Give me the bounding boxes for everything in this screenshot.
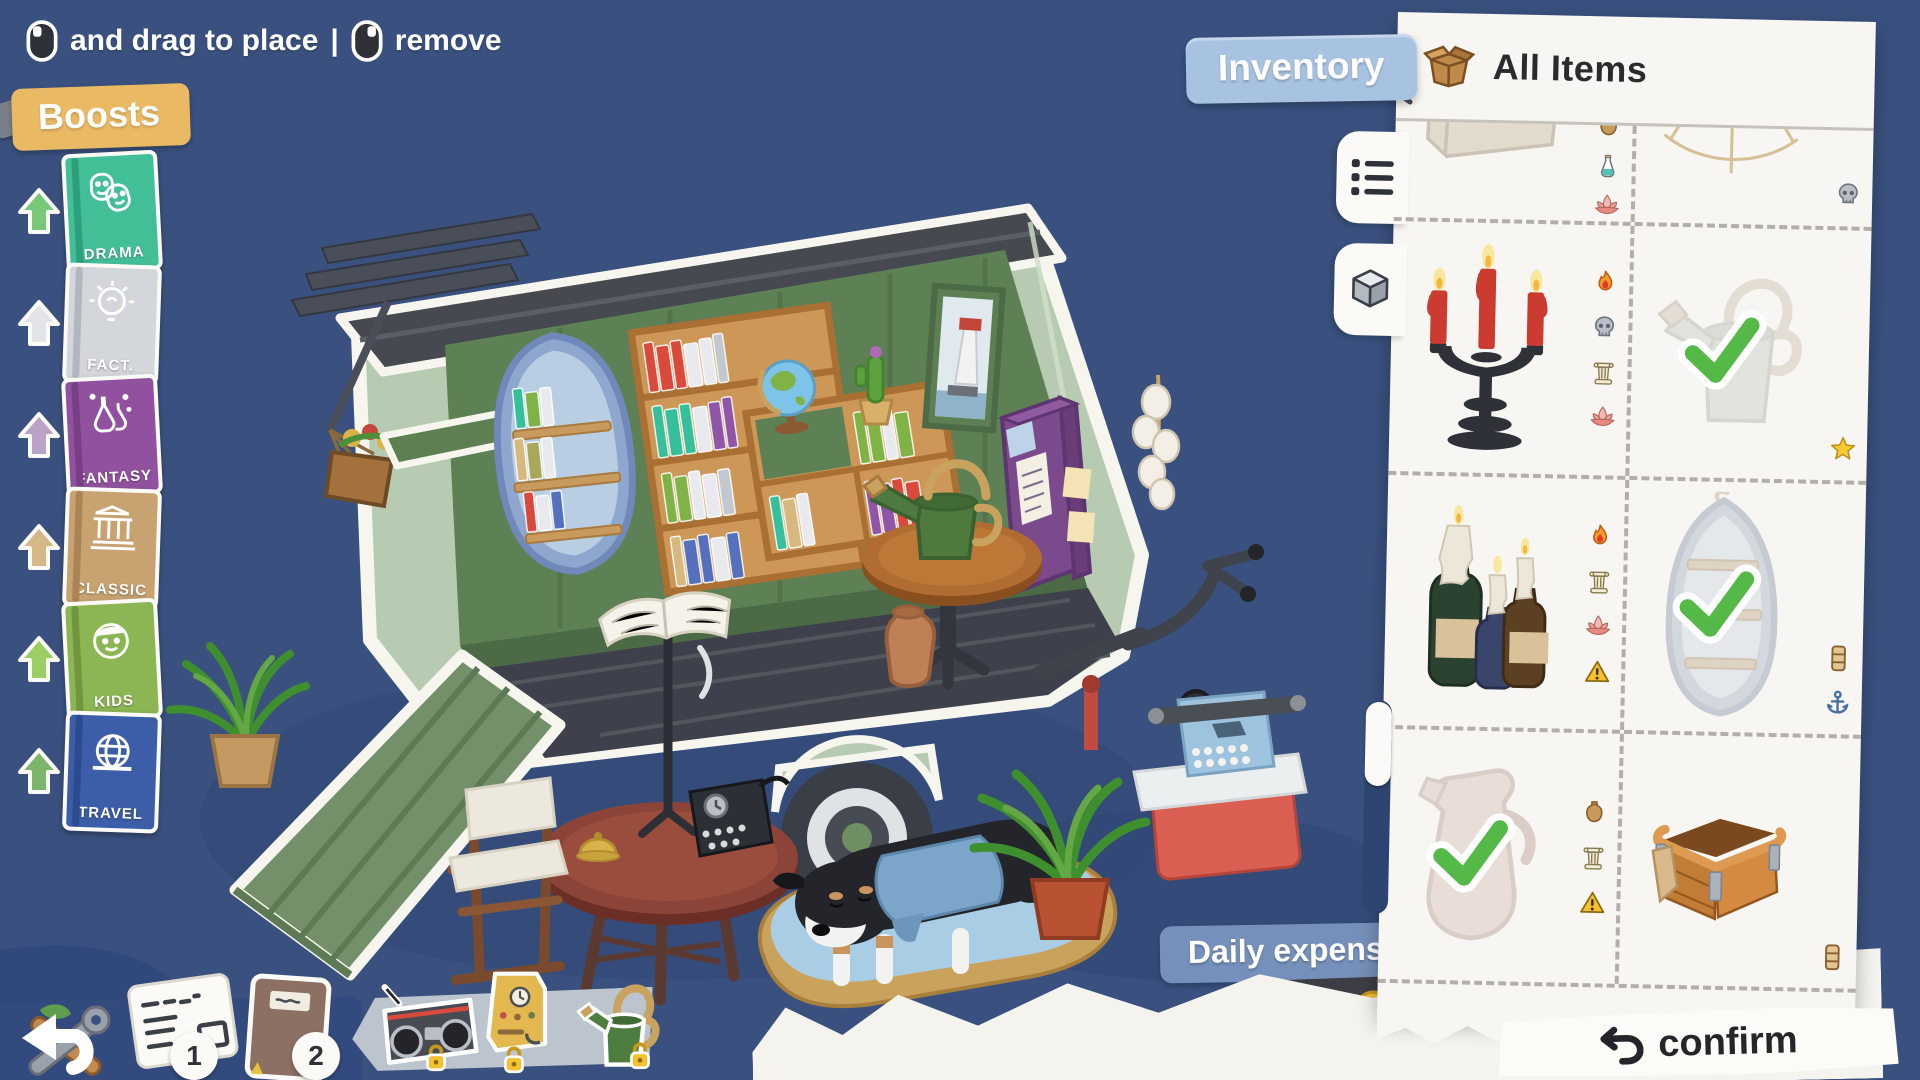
- vase-icon: [1579, 798, 1610, 829]
- inventory-item-bottle-candles[interactable]: [1383, 475, 1629, 730]
- boost-book-label: CLASSIC: [74, 580, 147, 600]
- lotus-icon: [1587, 403, 1618, 434]
- lotus-icon: [1583, 612, 1614, 643]
- lock-icon: [626, 1040, 654, 1072]
- lock-icon: [422, 1042, 450, 1074]
- drag-hint-text: and drag to place: [70, 24, 318, 58]
- item-status-badges: [1821, 484, 1858, 735]
- column-icon: [1584, 567, 1615, 598]
- right-click-mouse-icon: [351, 20, 383, 62]
- warning-icon: [1577, 888, 1608, 919]
- placement-hint: and drag to place | remove: [26, 20, 502, 62]
- shelf-icon: [1823, 643, 1854, 674]
- anchor-icon: [1822, 688, 1853, 719]
- left-click-mouse-icon: [26, 20, 58, 62]
- scrollbar-thumb[interactable]: [1364, 702, 1392, 787]
- lotus-icon: [1592, 191, 1623, 222]
- panel-title: All Items: [1492, 46, 1647, 91]
- remove-hint-text: remove: [395, 24, 502, 58]
- list-icon: [1349, 156, 1396, 199]
- boost-book-label: DRAMA: [83, 243, 145, 263]
- boost-up-arrow-icon: [16, 410, 62, 462]
- inventory-grid: [1378, 121, 1874, 993]
- item-status-badges: [1816, 738, 1853, 989]
- boost-book-fantasy[interactable]: FANTASY: [16, 386, 160, 486]
- potion-icon: [1593, 151, 1624, 182]
- placed-check-icon: [1669, 298, 1771, 400]
- boost-book-drama[interactable]: DRAMA: [16, 162, 160, 262]
- hint-divider: |: [330, 24, 338, 58]
- inventory-scrollbar[interactable]: [1362, 700, 1392, 914]
- inventory-item-watering-can[interactable]: [1629, 226, 1871, 481]
- locked-item-watering-can[interactable]: [566, 978, 672, 1066]
- tools-icon: [10, 992, 120, 1080]
- spider-web-art: [1643, 126, 1822, 220]
- boost-book-label: TRAVEL: [78, 804, 143, 823]
- warning-icon: [1582, 657, 1613, 688]
- lighthouse-painting[interactable]: [925, 286, 1003, 430]
- mail-count-badge: 1: [170, 1032, 218, 1080]
- shelf-icon: [1817, 942, 1848, 973]
- boost-up-arrow-icon: [16, 634, 62, 686]
- inventory-row: [1378, 729, 1861, 993]
- theater-masks-icon: [83, 163, 140, 224]
- fire-icon: [1585, 522, 1616, 553]
- boost-book-list: DRAMA FACT. FANTASY CLASSIC KIDS: [16, 162, 160, 822]
- item-status-badges: [1580, 479, 1617, 730]
- boosts-heading: Boosts: [11, 83, 191, 151]
- placed-check-icon: [1664, 552, 1766, 654]
- child-face-icon: [83, 611, 140, 672]
- candelabra-art: [1397, 231, 1577, 465]
- boost-book-label: KIDS: [94, 692, 135, 711]
- column-icon: [1588, 358, 1619, 389]
- item-status-badges: [1832, 130, 1866, 227]
- greek-temple-icon: [85, 499, 141, 559]
- inventory-item-storage-box[interactable]: [1394, 121, 1637, 222]
- item-status-badges: [1591, 121, 1625, 222]
- game-screen: { "colors": { "background": "#3a517f", "…: [0, 0, 1920, 1080]
- skull-icon: [1589, 313, 1620, 344]
- journal-count-badge: 2: [292, 1032, 340, 1080]
- boost-up-arrow-icon: [16, 186, 62, 238]
- fire-icon: [1590, 268, 1621, 299]
- item-status-badges: [1826, 230, 1863, 481]
- inventory-button[interactable]: Inventory: [1185, 34, 1417, 104]
- book-spine: [72, 267, 83, 379]
- undo-arrow-icon: [1598, 1025, 1645, 1066]
- column-icon: [1578, 843, 1609, 874]
- copper-jug[interactable]: [887, 606, 935, 686]
- typewriter-cooler[interactable]: [1134, 692, 1306, 879]
- inventory-row: [1394, 121, 1874, 231]
- inventory-item-candelabra[interactable]: [1388, 221, 1634, 476]
- inventory-row: [1383, 475, 1866, 739]
- item-status-badges: [1575, 733, 1612, 984]
- boost-book-classic[interactable]: CLASSIC: [16, 498, 160, 598]
- boost-book-label: FACT.: [87, 356, 134, 375]
- lock-icon: [500, 1044, 528, 1076]
- boost-book-label: FANTASY: [76, 467, 153, 488]
- globe-icon: [85, 723, 141, 783]
- inventory-row: [1388, 221, 1871, 485]
- wooden-crate-art: [1627, 744, 1807, 978]
- star-icon: [1828, 434, 1859, 465]
- boost-up-arrow-icon: [16, 522, 62, 574]
- garlic-string[interactable]: [1133, 375, 1179, 509]
- boost-up-arrow-icon: [16, 298, 62, 350]
- inventory-item-jug[interactable]: [1378, 729, 1624, 984]
- storage-box-art: [1402, 121, 1581, 215]
- boost-book-travel[interactable]: TRAVEL: [16, 722, 160, 822]
- watering-can-green-icon: [566, 978, 672, 1075]
- placed-check-icon: [1418, 801, 1520, 903]
- cube-icon: [1347, 265, 1394, 314]
- open-box-icon: [1422, 43, 1475, 90]
- confirm-label: confirm: [1658, 1019, 1799, 1066]
- inventory-header: All Items: [1396, 12, 1876, 131]
- inventory-item-spider-web[interactable]: [1635, 126, 1874, 227]
- skull-icon: [1833, 180, 1864, 211]
- bottle-candles-art: [1391, 485, 1571, 719]
- inventory-panel: All Items: [1377, 12, 1876, 1026]
- inventory-item-wooden-crate[interactable]: [1619, 734, 1861, 989]
- boost-up-arrow-icon: [16, 746, 62, 798]
- boost-book-fact[interactable]: FACT.: [16, 274, 160, 374]
- lightbulb-icon: [85, 275, 141, 335]
- potion-flasks-icon: [83, 387, 140, 448]
- item-status-badges: [1585, 225, 1622, 476]
- inventory-item-boat-shelf[interactable]: [1624, 480, 1866, 735]
- boost-book-kids[interactable]: KIDS: [16, 610, 160, 710]
- tools-button[interactable]: [10, 992, 120, 1080]
